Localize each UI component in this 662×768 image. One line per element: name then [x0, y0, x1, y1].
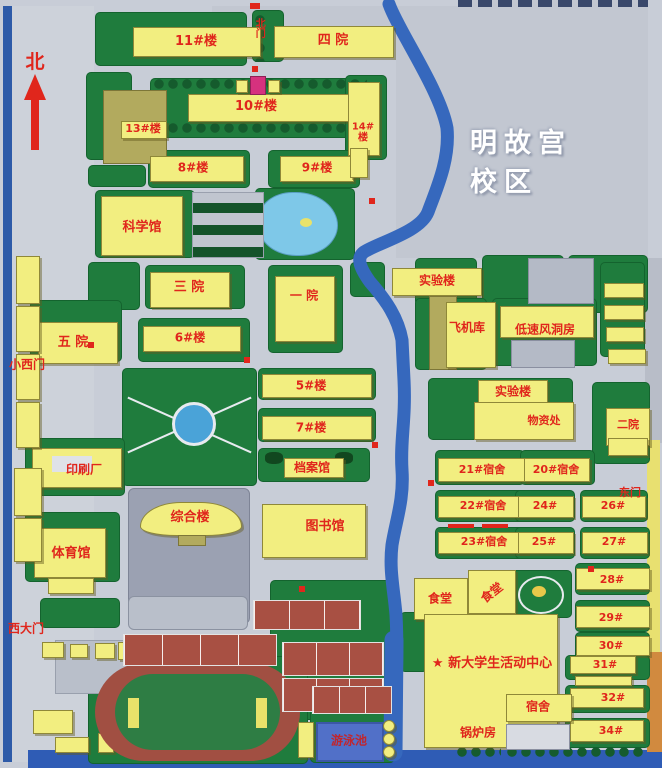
compass-north-label: 北: [25, 53, 44, 73]
label-dorm32: 32#: [601, 692, 626, 704]
tree-row: [152, 120, 367, 136]
north-gate-marker: [250, 3, 260, 9]
building-10: [188, 94, 372, 122]
stadium-goal: [128, 698, 139, 728]
small-building: [350, 148, 368, 178]
pool-knob: [383, 720, 395, 732]
label-dorm29: 29#: [599, 612, 624, 624]
building-feijiku: [446, 302, 496, 368]
label-zonghelou: 综合楼: [170, 511, 209, 525]
building-tiyuguan-wing: [48, 578, 94, 594]
wall-strip-building: [14, 468, 42, 516]
pool-knob: [383, 746, 395, 758]
wall-strip-building: [16, 256, 40, 304]
campus-title: 明故宫校区: [470, 121, 598, 199]
label-building-14: 14# 楼: [350, 123, 376, 144]
small-building: [42, 642, 64, 658]
wall-strip-building: [16, 402, 40, 448]
label-small-west-gate: 小西门: [9, 359, 45, 372]
bar-building: [604, 283, 644, 298]
pool-knob: [383, 733, 395, 745]
label-youyongchi: 游泳池: [331, 735, 367, 748]
gray-building: [506, 724, 570, 750]
label-kexueguan: 科学馆: [122, 221, 161, 235]
label-dorm24: 24#: [533, 500, 558, 512]
label-building-6: 6#楼: [175, 332, 205, 345]
stadium-goal: [256, 698, 267, 728]
label-danganguan: 档案馆: [294, 462, 330, 475]
label-dorm26: 26#: [601, 500, 626, 512]
pool-side-building: [298, 722, 314, 758]
label-feijiku: 飞机库: [449, 322, 485, 335]
top-cut-text-strip: [458, 0, 648, 7]
red-marker: [482, 524, 508, 528]
road-marker: [88, 342, 94, 348]
label-dorm27: 27#: [602, 536, 627, 548]
road-marker: [252, 66, 258, 72]
pond: [258, 192, 338, 256]
label-building-13: 13#楼: [125, 123, 161, 135]
label-dorm21: 21#宿舍: [459, 464, 506, 476]
road-marker: [244, 357, 250, 363]
gray-building: [511, 340, 575, 368]
gray-building: [528, 258, 594, 304]
label-yinshuachang: 印刷厂: [66, 464, 102, 477]
road-marker: [369, 198, 375, 204]
campus-map: 北 11#楼 四 院 10#楼 14# 楼 13#楼 8#楼 9#楼 科学馆 三…: [0, 0, 662, 768]
pond-island: [300, 218, 312, 227]
road-marker: [372, 442, 378, 448]
label-dorm22: 22#宿舍: [460, 500, 507, 512]
small-building: [95, 643, 115, 659]
tennis-courts: [312, 686, 392, 714]
label-dorm20: 20#宿舍: [533, 464, 580, 476]
bar-building: [604, 305, 644, 320]
building-yiyuan: [275, 276, 335, 342]
label-building-10: 10#楼: [235, 100, 277, 114]
label-shiyanlou-south: 实验楼: [495, 386, 531, 399]
label-tiyuguan: 体育馆: [51, 547, 90, 561]
label-west-main-gate: 西大门: [8, 623, 44, 636]
park-fountain: [172, 402, 216, 446]
lawn-block: [88, 165, 146, 187]
label-wuyuan: 五 院: [58, 336, 89, 350]
label-building-9: 9#楼: [302, 162, 332, 175]
label-dorm23: 23#宿舍: [461, 536, 508, 548]
label-eryuan: 二院: [617, 419, 639, 431]
mid-parking: [128, 596, 248, 630]
lawn-block: [350, 262, 385, 297]
wall-strip-building: [14, 518, 42, 562]
label-sanyuan: 三 院: [174, 281, 205, 295]
small-building: [33, 710, 73, 734]
label-tushuguan: 图书馆: [305, 520, 344, 534]
label-yiyuan: 一 院: [290, 290, 318, 303]
label-dorm25: 25#: [532, 536, 557, 548]
label-fengdongfang: 低速风洞房: [515, 324, 575, 337]
road-marker: [299, 586, 305, 592]
zonghelou-steps: [178, 535, 206, 546]
road-marker: [428, 480, 434, 486]
dorm-building: [575, 676, 632, 686]
building-14: [348, 82, 380, 156]
building-10-entrance: [250, 76, 266, 95]
lawn-block: [40, 598, 120, 628]
compass-arrow-stem: [31, 98, 39, 150]
label-east-gate: 东门: [619, 487, 641, 499]
label-building-5: 5#楼: [296, 380, 326, 393]
building-10-wing: [268, 80, 280, 93]
label-building-8: 8#楼: [178, 162, 208, 175]
label-sushe: 宿舍: [526, 701, 550, 714]
basketball-courts: [123, 634, 277, 666]
wall-strip-building: [16, 306, 40, 352]
label-dorm30: 30#: [599, 640, 624, 652]
small-building: [70, 644, 88, 658]
basketball-courts: [253, 600, 361, 630]
label-dorm34: 34#: [599, 725, 624, 737]
label-building-7: 7#楼: [296, 422, 326, 435]
label-siyuan: 四 院: [318, 34, 349, 48]
frame-left-strip: [3, 6, 12, 762]
garden-center: [532, 586, 546, 597]
compass-arrow-head: [24, 74, 46, 100]
dorm-building: [608, 438, 648, 456]
label-dorm31: 31#: [593, 659, 618, 671]
building-10-wing: [236, 80, 248, 93]
label-building-11: 11#楼: [175, 35, 217, 49]
small-building: [55, 737, 89, 753]
label-dorm28: 28#: [600, 574, 625, 586]
label-guolufang: 锅炉房: [460, 727, 496, 740]
label-activity-center: ★ 新大学生活动中心: [432, 657, 552, 671]
basketball-courts: [282, 642, 384, 676]
label-shiyanlou-north: 实验楼: [419, 275, 455, 288]
road-marker: [588, 566, 594, 572]
archive-trees: [265, 452, 283, 464]
bar-building: [608, 349, 646, 364]
parking-strips: [192, 192, 264, 258]
label-wuzichu: 物资处: [528, 415, 561, 427]
bar-building: [606, 327, 644, 342]
label-north-gate: 北门: [253, 18, 264, 38]
red-marker: [448, 524, 474, 528]
label-shitang-west: 食堂: [428, 593, 452, 606]
